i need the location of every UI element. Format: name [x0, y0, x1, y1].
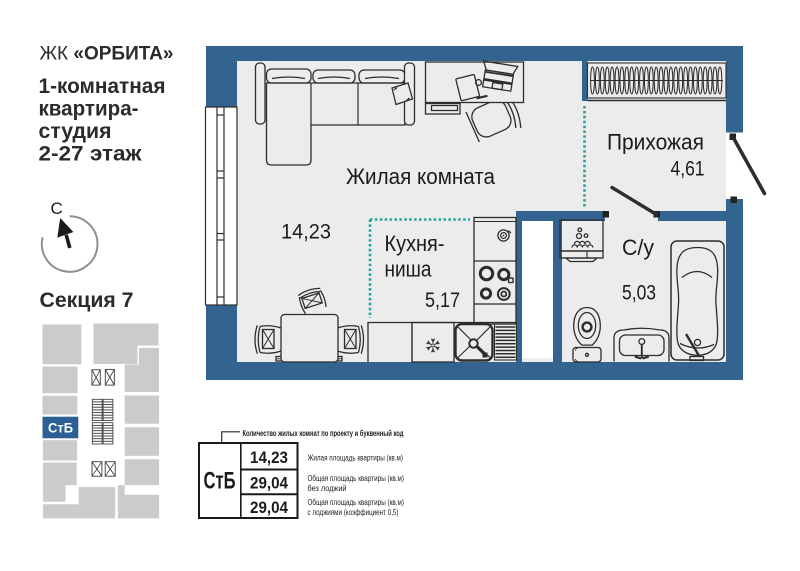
svg-text:Общая площадь квартиры (кв.м): Общая площадь квартиры (кв.м) [308, 474, 405, 483]
svg-text:Количество жилых комнат по про: Количество жилых комнат по проекту и бук… [243, 429, 404, 438]
svg-text:14,23: 14,23 [281, 221, 331, 244]
svg-text:29,04: 29,04 [250, 498, 288, 517]
svg-text:29,04: 29,04 [250, 473, 288, 492]
svg-text:4,61: 4,61 [671, 158, 705, 181]
svg-text:СтБ: СтБ [48, 420, 73, 436]
svg-text:Жилая комната: Жилая комната [346, 164, 496, 189]
svg-text:14,23: 14,23 [250, 448, 288, 467]
svg-text:СтБ: СтБ [204, 468, 236, 495]
svg-text:без лоджий: без лоджий [308, 484, 347, 493]
svg-text:квартира-: квартира- [39, 98, 139, 121]
svg-text:2-27 этаж: 2-27 этаж [39, 143, 143, 166]
svg-text:С/у: С/у [622, 235, 654, 260]
svg-text:с лоджиями (коэффициент 0,5): с лоджиями (коэффициент 0,5) [308, 508, 399, 517]
svg-text:студия: студия [39, 120, 112, 143]
svg-text:Жилая площадь квартиры (кв.м): Жилая площадь квартиры (кв.м) [308, 454, 404, 463]
svg-text:Прихожая: Прихожая [607, 130, 704, 155]
svg-text:Кухня-: Кухня- [385, 231, 445, 256]
svg-text:Общая площадь квартиры (кв.м): Общая площадь квартиры (кв.м) [308, 498, 405, 507]
svg-text:Секция 7: Секция 7 [40, 288, 134, 312]
svg-text:5,03: 5,03 [622, 282, 656, 305]
svg-text:ЖК «ОРБИТА»: ЖК «ОРБИТА» [40, 44, 174, 65]
svg-text:ниша: ниша [385, 257, 433, 282]
svg-text:5,17: 5,17 [425, 289, 460, 312]
svg-text:1-комнатная: 1-комнатная [39, 75, 166, 98]
svg-text:С: С [51, 199, 63, 218]
